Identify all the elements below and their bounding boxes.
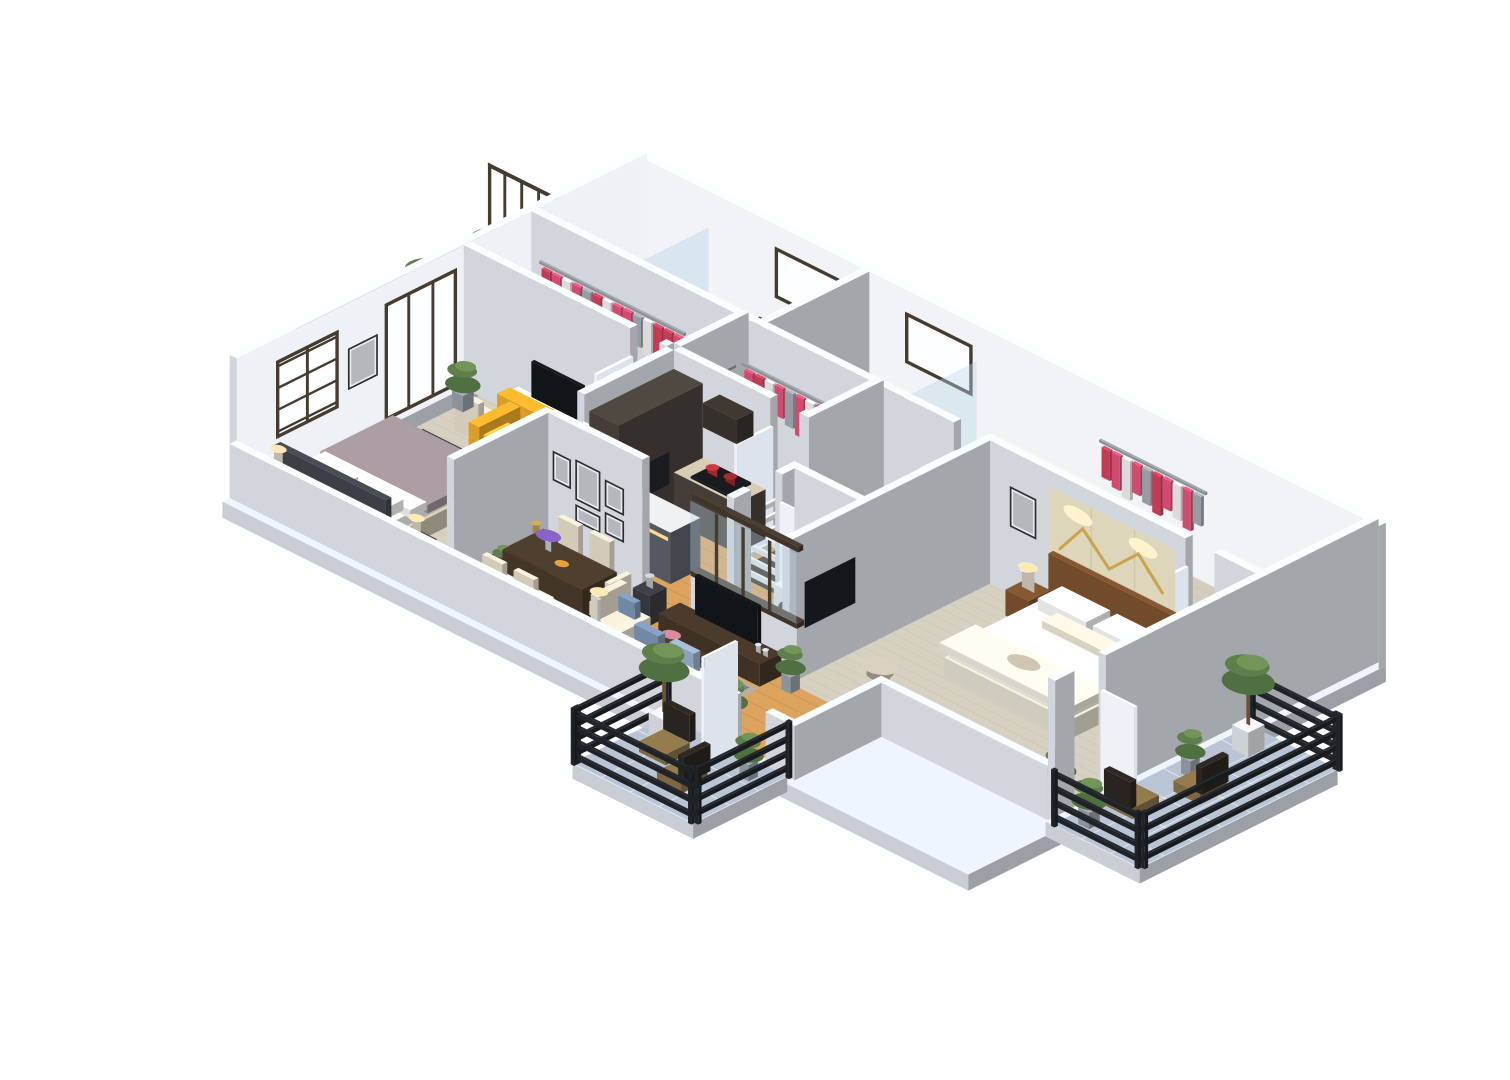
floor-plan-page (0, 0, 1510, 1080)
partition-mullion-3 (768, 540, 771, 612)
floor-plan-3d-render (0, 0, 1510, 1080)
partition-mullion-1 (715, 513, 718, 585)
partition-mullion-2 (741, 526, 744, 598)
